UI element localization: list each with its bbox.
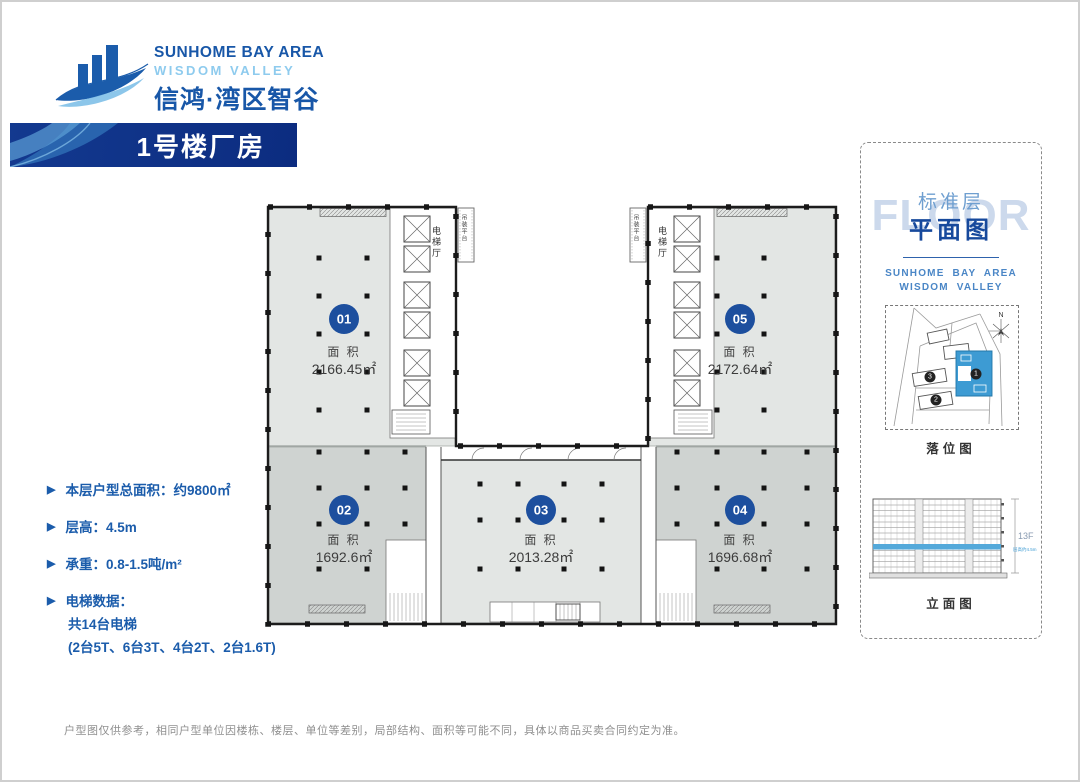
- logo-subname-en: WISDOM VALLEY: [154, 63, 324, 78]
- unit-number: 02: [337, 503, 351, 518]
- area-label: 面 积: [723, 345, 756, 359]
- highlighted-floor-band: [873, 544, 1001, 550]
- unit-number: 04: [733, 503, 748, 518]
- floor-plan-svg: 电梯厅 电梯厅 吊装平台 吊装平台 01 面 积 2166.45㎡ 02 面 积…: [262, 198, 842, 630]
- floors-count-label: 13F: [1018, 531, 1034, 541]
- elevation-drawing: 13F 层高约4.5m: [869, 493, 1037, 594]
- site-map-drawing: 3 2 1 N: [886, 306, 1017, 428]
- side-panel: FLOOR 标准层 平面图 SUNHOME BAY AREA WISDOM VA…: [860, 142, 1042, 639]
- hoisting-platforms: [458, 208, 646, 262]
- info-item-total-area: ▶ 本层户型总面积：约9800㎡: [47, 482, 297, 499]
- svg-text:N: N: [998, 312, 1003, 319]
- area-value: 2166.45㎡: [312, 361, 377, 377]
- banner-title: 1号楼厂房: [137, 127, 265, 164]
- area-value: 2172.64㎡: [708, 361, 773, 377]
- svg-text:3: 3: [928, 374, 932, 381]
- info-text: 本层户型总面积：约9800㎡: [65, 482, 230, 499]
- unit-number: 03: [534, 503, 548, 518]
- bullet-triangle-icon: ▶: [47, 482, 55, 499]
- area-label: 面 积: [524, 533, 557, 547]
- logo-name-cn: 信鸿·湾区智谷: [154, 80, 324, 116]
- bullet-triangle-icon: ▶: [47, 556, 55, 573]
- area-value: 1692.6㎡: [316, 549, 373, 565]
- bullet-triangle-icon: ▶: [47, 593, 55, 610]
- area-value: 1696.68㎡: [708, 549, 773, 565]
- hoisting-platform-label-left: 吊装平台: [460, 214, 467, 242]
- logo-building-wave-icon: [54, 42, 150, 118]
- unit-number: 01: [337, 312, 351, 327]
- bullet-triangle-icon: ▶: [47, 519, 55, 536]
- panel-title-line2: 平面图: [861, 210, 1041, 245]
- info-item-floor-height: ▶ 层高：4.5m: [47, 519, 297, 536]
- panel-brand-line1: SUNHOME BAY AREA: [861, 267, 1041, 281]
- info-elevator-detail: (2台5T、6台3T、4台2T、2台1.6T): [68, 639, 297, 656]
- svg-text:2: 2: [934, 397, 938, 404]
- svg-text:1: 1: [974, 371, 978, 378]
- elevator-hall-label-left: 电梯厅: [431, 225, 441, 259]
- elevation-caption: 立面图: [861, 593, 1041, 612]
- unit-number: 05: [733, 312, 747, 327]
- building-title-banner: 1号楼厂房: [10, 123, 297, 167]
- logo-name-en: SUNHOME BAY AREA: [154, 44, 324, 62]
- info-item-elevator-data: ▶ 电梯数据：: [47, 593, 297, 610]
- floor-info-list: ▶ 本层户型总面积：约9800㎡ ▶ 层高：4.5m ▶ 承重：0.8-1.5吨…: [47, 482, 297, 656]
- brochure-page: SUNHOME BAY AREA WISDOM VALLEY 信鸿·湾区智谷 1…: [0, 0, 1080, 782]
- floor-height-label: 层高约4.5m: [1013, 546, 1037, 553]
- panel-header: FLOOR 标准层 平面图: [861, 179, 1041, 259]
- elevator-hall-label-right: 电梯厅: [657, 225, 667, 259]
- site-map: 3 2 1 N: [885, 305, 1019, 430]
- panel-divider: [903, 257, 999, 258]
- info-text: 承重：0.8-1.5吨/m²: [65, 556, 181, 573]
- hoisting-platform-label-right: 吊装平台: [632, 214, 639, 242]
- info-text: 层高：4.5m: [65, 519, 136, 536]
- area-label: 面 积: [327, 345, 360, 359]
- area-label: 面 积: [327, 533, 360, 547]
- panel-brand-line2: WISDOM VALLEY: [861, 281, 1041, 295]
- info-item-load-capacity: ▶ 承重：0.8-1.5吨/m²: [47, 556, 297, 573]
- door-swing-arcs: [472, 448, 626, 460]
- disclaimer-text: 户型图仅供参考，相同户型单位因楼栋、楼层、单位等差别，局部结构、面积等可能不同，…: [64, 722, 685, 738]
- logo: SUNHOME BAY AREA WISDOM VALLEY 信鸿·湾区智谷: [54, 40, 354, 120]
- site-map-caption: 落位图: [861, 438, 1041, 457]
- info-text: 电梯数据：: [65, 593, 133, 610]
- area-value: 2013.28㎡: [509, 549, 574, 565]
- area-label: 面 积: [723, 533, 756, 547]
